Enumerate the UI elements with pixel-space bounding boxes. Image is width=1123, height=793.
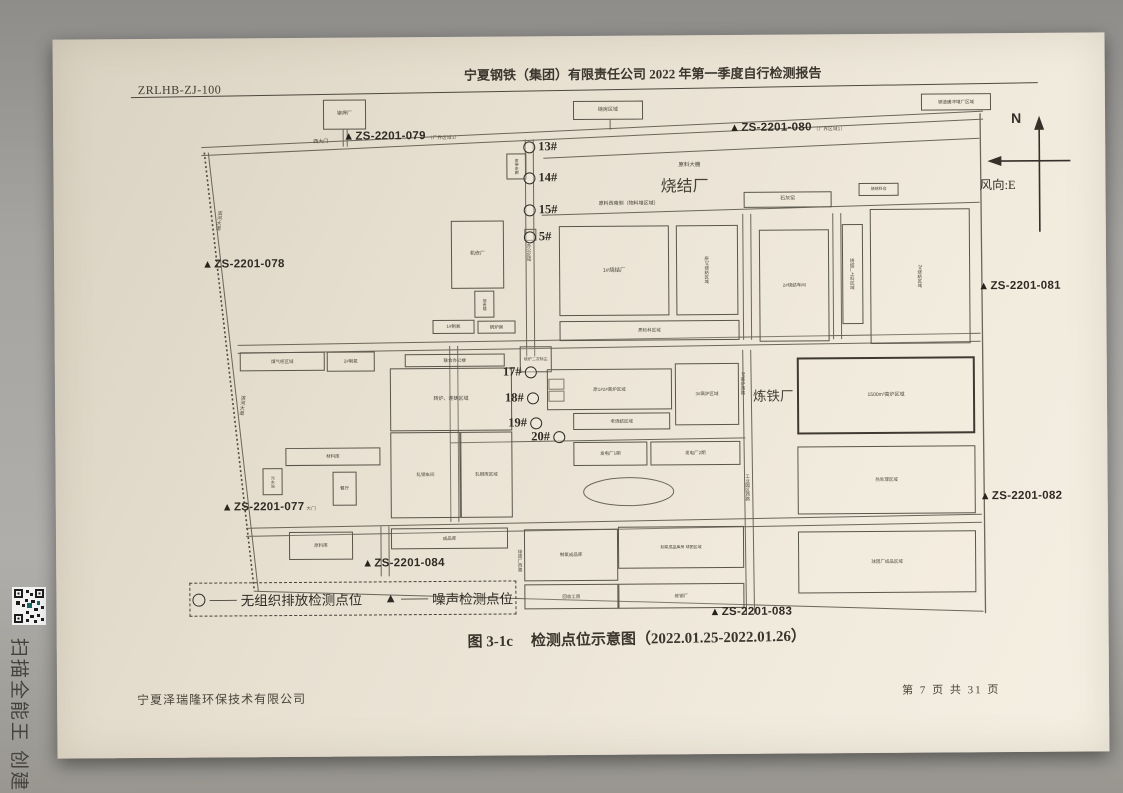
map-building: 2#制氧 [327, 351, 375, 371]
circle-marker-icon [524, 231, 536, 243]
emission-point: 17# [503, 364, 537, 379]
page-title: 宁夏钢铁（集团）有限责任公司 2022 年第一季度自行检测报告 [353, 62, 933, 85]
map-building: 烧结厂上料区域 [842, 224, 864, 324]
compass-north-label: N [1011, 110, 1021, 126]
map-building: 烧结料仓 [859, 183, 899, 196]
map-building: 3#高炉区域 [675, 363, 739, 425]
map-building: 材料库 [285, 447, 380, 466]
triangle-marker-icon: ▲ [222, 501, 233, 513]
road-label: 工业园区西路 [745, 474, 751, 501]
cooling-pond [584, 477, 674, 506]
map-building: 质检科区域 [559, 320, 739, 341]
map-building: 铆焊厂 [323, 99, 366, 129]
map-building: 污水站 [262, 468, 282, 495]
triangle-marker-icon: ▲ [980, 490, 991, 502]
map-building: 磅房区域 [573, 101, 643, 120]
emission-point: 20# [531, 429, 565, 444]
map-building: 机修厂 [451, 221, 504, 289]
footer-page-number: 第 7 页 共 31 页 [902, 681, 1000, 698]
noise-point: ▲ ZS-2201-084 [362, 557, 445, 570]
circle-marker-icon [523, 141, 535, 153]
map-building: 制氧成品库房 球团区域 [618, 526, 744, 569]
noise-point: ▲ ZS-2201-082 [980, 490, 1063, 503]
map-building: 1#制氧 [432, 320, 474, 334]
noise-point: ▲ ZS-2201-077大门 [222, 501, 316, 514]
map-building: 转炉、连铸区域 [390, 367, 512, 431]
label-sinter-plant: 烧结厂 [660, 172, 708, 196]
triangle-marker-icon: ▲ [362, 557, 373, 569]
circle-marker-icon [193, 593, 206, 606]
map-building: 回收工房 [524, 584, 618, 610]
map-building: 锅炉房 [477, 320, 515, 333]
triangle-marker-icon: ▲ [384, 590, 397, 606]
road-label: 球团厂西路 [517, 549, 523, 572]
map-legend: —— 无组织排放检测点位 ▲ —— 噪声检测点位 [189, 580, 516, 616]
map-building: 原1#烧结区域 [676, 225, 739, 315]
map-building: 老烧结区域 [573, 412, 670, 430]
emission-point: 19# [508, 415, 542, 430]
map-building: 餐厅 [333, 472, 357, 506]
noise-point: ▲ ZS-2201-078 [202, 258, 285, 271]
footer-company: 宁夏泽瑞隆环保技术有限公司 [137, 690, 306, 708]
label-raw-southwest: 原料西南侧（物料堆区域） [599, 199, 659, 206]
report-page: ZRLHB-ZJ-100 宁夏钢铁（集团）有限责任公司 2022 年第一季度自行… [53, 32, 1110, 758]
road-label: 3#高炉西路 [740, 372, 746, 395]
map-building: 原料库 [289, 532, 353, 560]
legend-circle-label: 无组织排放检测点位 [241, 589, 363, 610]
map-building: 1#烧结厂 [559, 225, 670, 316]
map-building: 成品库 [391, 528, 508, 550]
map-building-blast-furnace: 1500m³高炉区域 [797, 356, 976, 434]
emission-point: 15# [524, 202, 558, 217]
map-building: 石灰窑 [744, 191, 832, 208]
emission-point: 13# [523, 139, 557, 154]
map-building: 发电厂2期 [650, 441, 740, 466]
map-building: 球团厂成品区域 [798, 530, 976, 593]
map-building: 轧钢车间 [390, 432, 461, 518]
map-building: 煤气柜区域 [240, 352, 325, 372]
emission-point: 18# [505, 390, 539, 405]
label-west-gate: 西大门 [313, 138, 328, 145]
legend-triangle-label: 噪声检测点位 [432, 587, 513, 608]
scanner-watermark: 扫描全能王 创建 [10, 615, 34, 793]
map-building: 炼钢厂 [618, 583, 744, 609]
triangle-marker-icon: ▲ [709, 606, 720, 618]
map-building: 发电厂1期 [573, 442, 647, 467]
map-building: 钢渣缓冲堆厂区域 [921, 93, 991, 110]
label-raw-shed: 原料大棚 [678, 160, 700, 168]
circle-marker-icon [525, 366, 537, 378]
noise-point: ▲ ZS-2201-083 [709, 606, 792, 619]
circle-marker-icon [527, 392, 539, 404]
label-iron-plant: 炼铁厂 [753, 385, 794, 405]
emission-point: 14# [523, 170, 557, 185]
noise-point: ▲ ZS-2201-081 [978, 280, 1061, 293]
wind-direction-label: 风向:E [979, 174, 1015, 193]
noise-point: ▲ ZS-2201-079（厂界区域1） [343, 130, 459, 143]
road-label: 办公区域 [526, 243, 532, 261]
map-building: 轧钢库区域 [460, 431, 513, 517]
map-building: 宿舍楼 [474, 291, 494, 318]
emission-point: 5# [524, 229, 552, 244]
circle-marker-icon [523, 172, 535, 184]
site-map: 铆焊厂 磅房区域 钢渣缓冲堆厂区域 石灰窑 烧结料仓 1#烧结厂 原1#烧结区域… [173, 89, 1102, 660]
map-building: 制氧成品库 [524, 529, 618, 582]
triangle-marker-icon: ▲ [343, 131, 354, 143]
triangle-marker-icon: ▲ [202, 259, 213, 271]
triangle-marker-icon: ▲ [978, 280, 989, 292]
triangle-marker-icon: ▲ [729, 122, 740, 134]
circle-marker-icon [553, 431, 565, 443]
map-building: 2#烧结车间 [759, 229, 830, 341]
map-building: 原1#2#高炉区域 [547, 368, 672, 410]
map-building: 热处理区域 [797, 445, 975, 514]
map-building: 联合办公楼 [405, 354, 505, 368]
circle-marker-icon [530, 417, 542, 429]
noise-point: ▲ ZS-2201-080（厂界区域1） [729, 121, 845, 134]
circle-marker-icon [524, 204, 536, 216]
map-building: 2#烧结区域 [870, 208, 971, 344]
